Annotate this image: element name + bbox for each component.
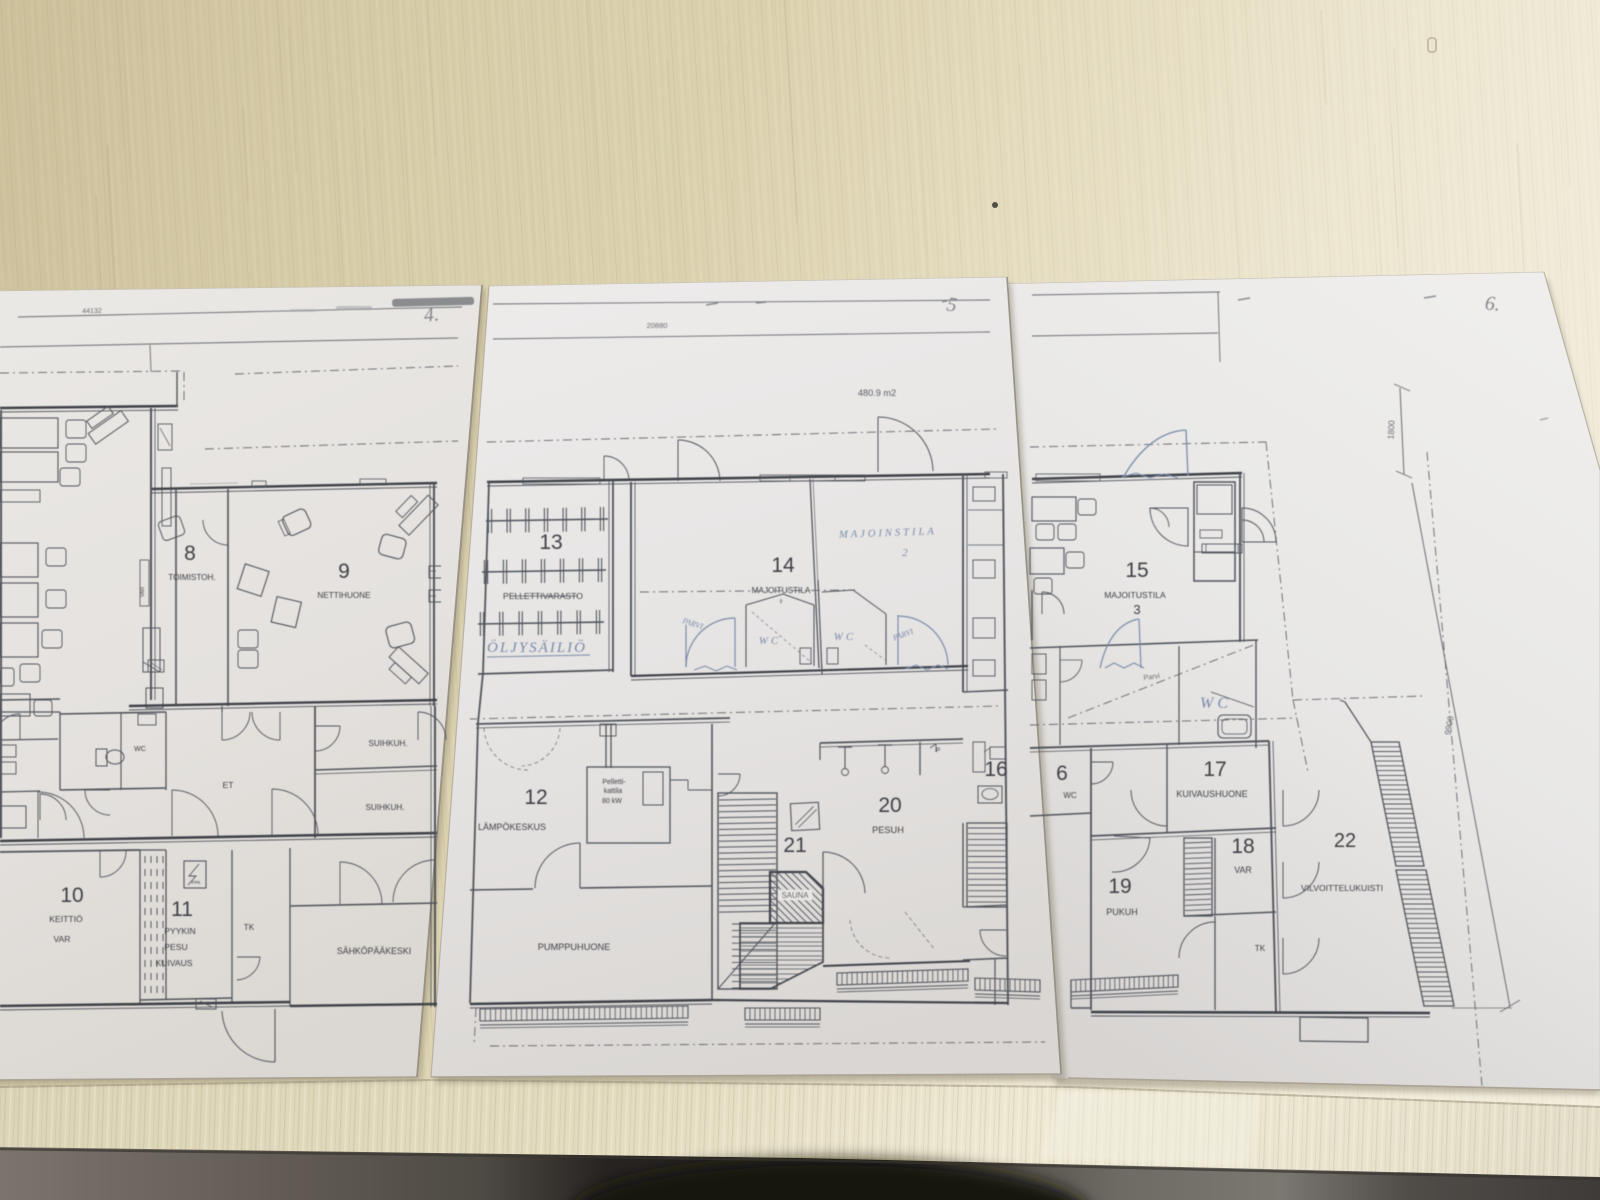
svg-text:14: 14 xyxy=(771,554,795,577)
svg-text:PUMPPUHUONE: PUMPPUHUONE xyxy=(538,942,611,952)
svg-text:SUIHKUH.: SUIHKUH. xyxy=(368,739,407,748)
svg-text:6.: 6. xyxy=(1484,292,1501,315)
svg-text:Pelletti-: Pelletti- xyxy=(602,779,626,786)
svg-text:4.: 4. xyxy=(423,303,440,326)
svg-text:PUKUH: PUKUH xyxy=(1106,907,1138,917)
svg-text:PESU: PESU xyxy=(164,942,187,952)
svg-text:80 kW: 80 kW xyxy=(602,798,622,805)
svg-text:480.9 m2: 480.9 m2 xyxy=(858,388,896,398)
svg-text:KUIVAUS: KUIVAUS xyxy=(155,958,192,968)
svg-text:11: 11 xyxy=(171,898,193,921)
svg-text:TK: TK xyxy=(1255,944,1266,953)
svg-text:TOIMISTOH.: TOIMISTOH. xyxy=(168,573,215,582)
svg-text:20: 20 xyxy=(878,794,901,817)
svg-text:WC: WC xyxy=(759,635,782,647)
svg-text:15: 15 xyxy=(1125,559,1148,582)
svg-text:VAR: VAR xyxy=(53,934,70,944)
svg-text:1800: 1800 xyxy=(1386,420,1397,440)
svg-text:21: 21 xyxy=(783,834,806,857)
svg-text:MAJOITUSTILA: MAJOITUSTILA xyxy=(1104,590,1166,600)
svg-text:VAR: VAR xyxy=(1234,865,1251,875)
svg-text:kattila: kattila xyxy=(604,788,622,795)
svg-text:8: 8 xyxy=(184,542,196,565)
svg-text:SÄHKÖPÄÄKESKI: SÄHKÖPÄÄKESKI xyxy=(337,946,411,956)
svg-text:6: 6 xyxy=(1056,762,1068,785)
svg-text:WC: WC xyxy=(134,744,146,753)
svg-text:LÄMPÖKESKUS: LÄMPÖKESKUS xyxy=(478,822,546,832)
svg-text:VAR: VAR xyxy=(140,587,146,598)
svg-text:ÖLJYSÄILIÖ: ÖLJYSÄILIÖ xyxy=(487,639,587,656)
svg-text:17: 17 xyxy=(1203,758,1226,781)
svg-text:♀: ♀ xyxy=(778,596,784,606)
svg-text:13: 13 xyxy=(539,531,562,554)
svg-text:WC: WC xyxy=(1063,791,1077,800)
svg-text:2: 2 xyxy=(902,547,908,559)
svg-text:KEITTIÖ: KEITTIÖ xyxy=(49,914,83,924)
svg-text:20880: 20880 xyxy=(647,321,668,330)
svg-text:10: 10 xyxy=(60,884,83,907)
svg-text:9: 9 xyxy=(338,560,350,583)
svg-text:12: 12 xyxy=(524,786,547,809)
svg-text:18: 18 xyxy=(1231,835,1254,858)
svg-text:PPK: PPK xyxy=(191,880,201,885)
svg-text:16: 16 xyxy=(984,758,1007,781)
svg-text:19: 19 xyxy=(1108,875,1131,898)
svg-text:44132: 44132 xyxy=(82,308,102,315)
svg-text:TK: TK xyxy=(244,923,255,932)
svg-text:22: 22 xyxy=(1334,830,1356,852)
svg-text:SAUNA: SAUNA xyxy=(782,891,810,900)
svg-text:NETTIHUONE: NETTIHUONE xyxy=(317,591,371,600)
svg-text:PYYKIN: PYYKIN xyxy=(164,926,196,936)
svg-text:P: P xyxy=(936,747,941,754)
svg-text:SUIHKUH.: SUIHKUH. xyxy=(365,803,404,812)
svg-text:3: 3 xyxy=(1133,602,1140,617)
svg-text:KUIVAUSHUONE: KUIVAUSHUONE xyxy=(1176,789,1247,799)
svg-text:ET: ET xyxy=(223,780,235,790)
svg-text:PESUH: PESUH xyxy=(872,825,904,835)
svg-text:VILVOITTELUKUISTI: VILVOITTELUKUISTI xyxy=(1301,883,1383,893)
svg-text:WC: WC xyxy=(834,631,857,643)
